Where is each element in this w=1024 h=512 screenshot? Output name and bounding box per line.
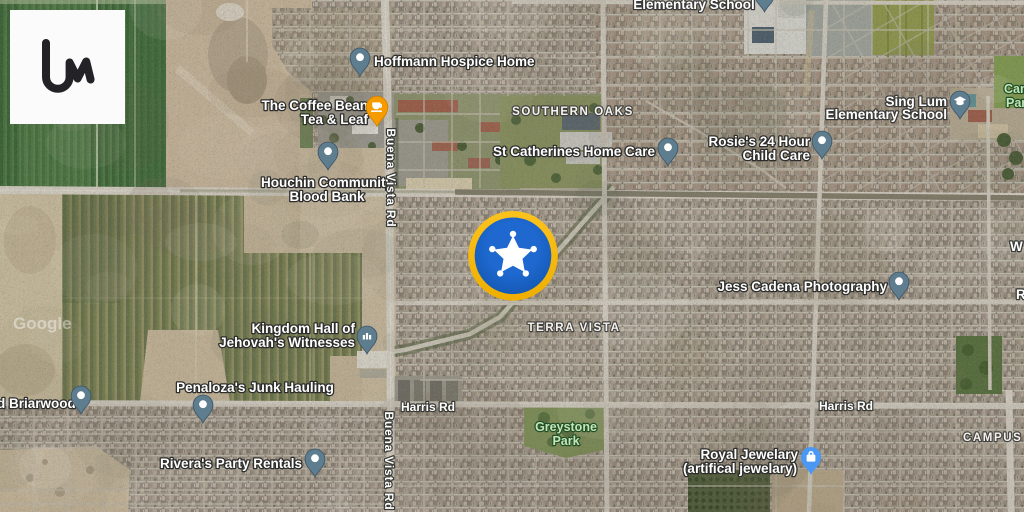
svg-text:Blood Bank: Blood Bank [289,189,364,204]
svg-text:St Catherines Home Care: St Catherines Home Care [493,144,656,159]
svg-text:Rosie's 24 Hour: Rosie's 24 Hour [709,134,811,149]
svg-text:W: W [1010,239,1023,254]
svg-text:Kingdom Hall of: Kingdom Hall of [252,321,356,336]
svg-text:SOUTHERN OAKS: SOUTHERN OAKS [512,106,634,118]
svg-text:Cam: Cam [1004,82,1024,96]
svg-text:Google: Google [13,314,72,333]
svg-text:Penaloza's Junk Hauling: Penaloza's Junk Hauling [176,380,334,395]
svg-text:Hoffmann Hospice Home: Hoffmann Hospice Home [374,54,535,69]
svg-text:Harris Rd: Harris Rd [401,400,455,414]
svg-text:(artifical jewelary): (artifical jewelary) [683,461,797,476]
svg-text:Greystone: Greystone [535,420,597,434]
svg-text:Harris Rd: Harris Rd [819,399,873,413]
svg-text:Buena Vista Rd: Buena Vista Rd [384,128,398,227]
svg-text:Jehovah's Witnesses: Jehovah's Witnesses [219,335,355,350]
svg-text:Royal Jewelary: Royal Jewelary [700,447,798,462]
svg-text:Elementary School: Elementary School [633,0,755,12]
svg-text:Park: Park [552,434,579,448]
svg-text:Jess Cadena Photography: Jess Cadena Photography [717,279,887,294]
svg-text:TERRA VISTA: TERRA VISTA [528,322,621,334]
svg-text:CAMPUS: CAMPUS [963,432,1022,444]
svg-text:Child Care: Child Care [742,148,810,163]
svg-text:Park: Park [1006,96,1024,110]
svg-text:Rivera's Party Rentals: Rivera's Party Rentals [160,456,302,471]
svg-text:Tea & Leaf: Tea & Leaf [301,112,369,127]
svg-text:Houchin Community: Houchin Community [261,175,393,190]
svg-text:d Briarwood: d Briarwood [0,396,76,411]
svg-text:R: R [1016,287,1024,302]
svg-text:The Coffee Bean: The Coffee Bean [261,98,368,113]
svg-text:Elementary School: Elementary School [825,107,947,122]
svg-text:Buena Vista Rd: Buena Vista Rd [382,411,396,510]
